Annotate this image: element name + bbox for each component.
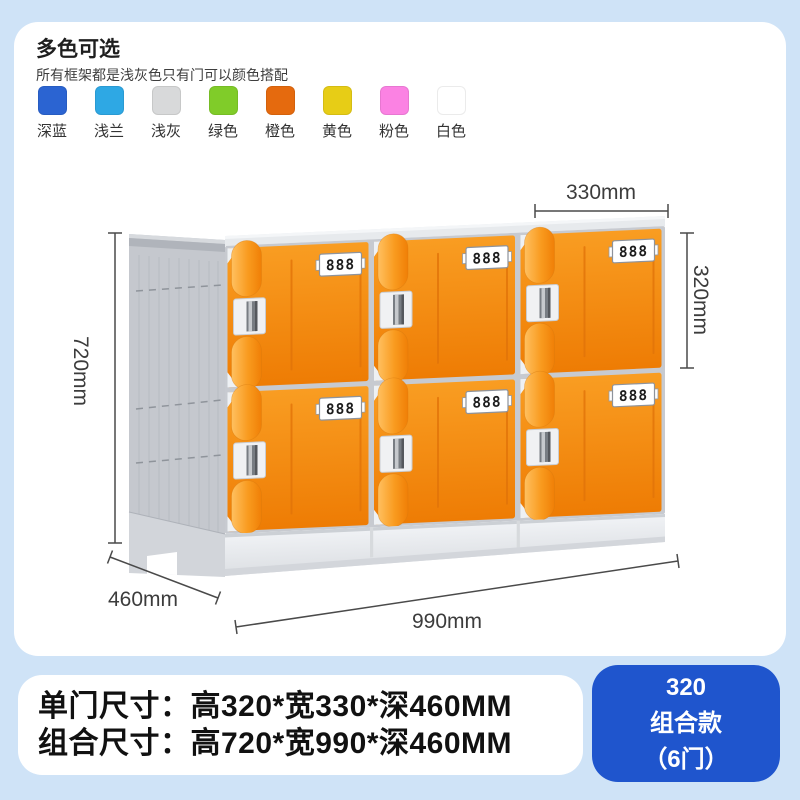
product-spec-image: 多色可选 所有框架都是浅灰色只有门可以颜色搭配 深蓝 浅兰 浅灰 绿色 橙色 [0,0,800,800]
spec-line-combined: 组合尺寸：高720*宽990*深460MM [38,725,583,762]
model-badge: 320 组合款 （6门） [592,665,780,782]
spec-box: 单门尺寸：高320*宽330*深460MM 组合尺寸：高720*宽990*深46… [18,675,583,775]
dim-label-door-height: 320mm [688,265,712,335]
side-panel-ridges [136,255,222,549]
plinth-foot-notch [147,552,177,575]
cabinet-side-panel [129,234,225,577]
dim-label-top-width: 330mm [566,181,636,205]
dim-line-720 [108,233,122,543]
dim-label-total-width: 990mm [412,610,482,634]
dim-label-depth: 460mm [108,588,178,612]
spec-line-single-door: 单门尺寸：高320*宽330*深460MM [38,688,583,725]
badge-model-type: 组合款 [650,706,722,742]
dim-label-total-height: 720mm [68,336,92,406]
dim-line-330 [535,204,668,218]
badge-door-count: （6门） [643,742,728,778]
badge-model-number: 320 [666,670,706,706]
cabinet-front [225,216,665,576]
